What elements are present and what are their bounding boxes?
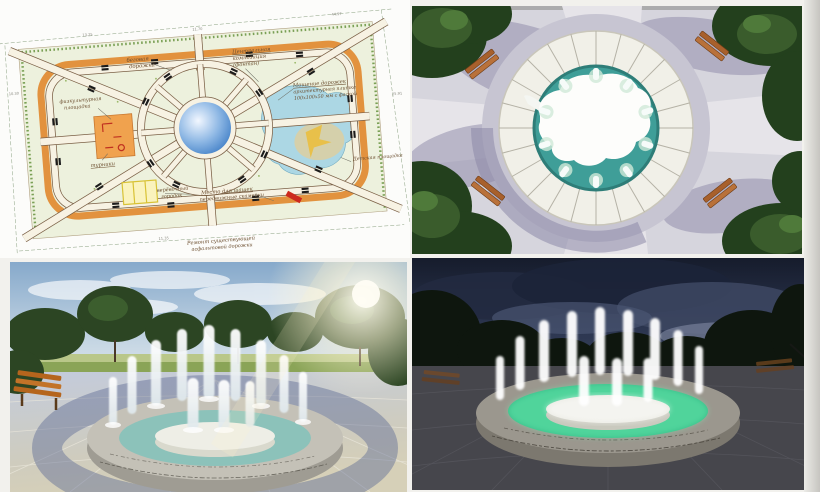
water-jet [644, 358, 653, 402]
site-plan: беговая дорожка Центральная композиция (… [0, 0, 410, 258]
night-render-panel [412, 258, 805, 490]
water-jet [674, 330, 683, 386]
sport-area [94, 114, 135, 159]
water-jet [128, 356, 137, 414]
site-plan-panel: беговая дорожка Центральная композиция (… [0, 0, 410, 258]
rope-park [122, 180, 158, 205]
sun [352, 280, 380, 308]
aerial-render-panel [412, 6, 802, 254]
water-jet [539, 320, 549, 382]
water-jet [595, 307, 605, 375]
water-jet [579, 356, 589, 406]
day-render-panel [10, 262, 407, 492]
svg-text:13.25: 13.25 [82, 33, 93, 38]
water-jet [299, 372, 307, 422]
water-jet [231, 329, 241, 401]
paper-edge [804, 0, 820, 492]
water-jet [567, 311, 577, 377]
water-jet [151, 340, 161, 406]
water-jet [695, 346, 703, 394]
water-jet [516, 336, 525, 390]
night-render [412, 258, 805, 490]
photo-collage: беговая дорожка Центральная композиция (… [0, 0, 820, 492]
day-render [10, 262, 407, 492]
water-jet [623, 310, 633, 376]
water-jet [177, 329, 187, 401]
water-jet [188, 378, 199, 430]
water-jet [496, 356, 504, 400]
water-jet [612, 358, 622, 406]
water-jet [204, 325, 215, 399]
svg-text:25.91: 25.91 [392, 91, 403, 96]
water-jet [109, 377, 117, 425]
aerial-render [412, 6, 802, 254]
svg-text:11.35: 11.35 [158, 236, 169, 241]
svg-text:44.97: 44.97 [331, 12, 342, 17]
